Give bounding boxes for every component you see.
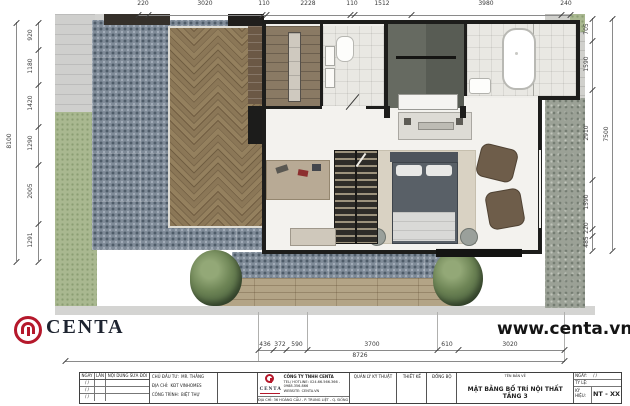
- wall-shelf: [325, 46, 335, 66]
- centa-logo-text: CENTA: [46, 316, 125, 339]
- closet-shelf: [398, 94, 458, 110]
- balcony-wood-deck: [213, 278, 455, 308]
- wall-hall-bottom-stub: [366, 106, 386, 109]
- dim-label: 2910: [583, 125, 590, 140]
- tree-left: [190, 250, 242, 306]
- drawing-name-label: TÊN BẢN VẼ: [457, 374, 573, 378]
- stair-railing: [288, 32, 301, 102]
- bathtub-drain: [515, 52, 518, 55]
- revision-row: / /: [80, 394, 95, 401]
- dim-line-bottom: [258, 350, 564, 351]
- ext-line: [437, 312, 438, 350]
- company-name: CÔNG TY TNHH CENTA: [284, 374, 349, 379]
- dim-label: 705: [583, 23, 590, 34]
- lawn-left: [55, 112, 97, 308]
- company-logo-rule: [260, 393, 280, 394]
- wall-hall-closet: [384, 20, 388, 112]
- wall-stairs-hall: [320, 24, 323, 106]
- dim-label: 920: [27, 29, 34, 40]
- bed-headboard: [390, 152, 458, 162]
- dim-label: 1590: [583, 194, 590, 209]
- signature-title: QUẢN LÝ KỸ THUẬT: [354, 374, 392, 379]
- deck-column: [170, 28, 194, 226]
- wall-top: [262, 20, 580, 24]
- dim-label: 3700: [364, 341, 379, 348]
- dim-total-label: 7500: [603, 126, 610, 141]
- dim-label: 372: [274, 341, 285, 348]
- path-steps-left: [55, 14, 95, 118]
- dim-label: 110: [346, 0, 357, 7]
- dim-label: 110: [258, 0, 269, 7]
- bed-pillow: [396, 165, 422, 176]
- dim-label: 2228: [300, 0, 315, 7]
- website-url: www.centa.vn: [497, 319, 630, 339]
- company-logo-text: CENTA: [260, 387, 282, 392]
- revision-row: / /: [80, 387, 95, 393]
- deck-column: [218, 28, 242, 226]
- floor-plan-sheet: 220 3020 110 2228 110 1512 3980 240 920 …: [0, 0, 630, 406]
- ext-line: [307, 312, 308, 350]
- owner-value: MR. THẮNG: [181, 374, 204, 383]
- bed-pillow: [426, 165, 452, 176]
- project-info: CHỦ ĐẦU TƯ:MR. THẮNG ĐỊA CHỈ:KĐT VINHOME…: [150, 373, 218, 403]
- window-right: [539, 150, 541, 228]
- signature-col: THIẾT KẾ: [397, 373, 427, 403]
- dim-label: 240: [560, 0, 571, 7]
- dim-label: 3020: [197, 0, 212, 7]
- dim-label: 590: [291, 341, 302, 348]
- signature-col: QUẢN LÝ KỸ THUẬT: [350, 373, 398, 403]
- dim-line-bottom-total: [65, 361, 564, 362]
- dim-line-right: [592, 18, 593, 250]
- bed-blanket-foot: [393, 212, 455, 241]
- dim-label: 3980: [478, 0, 493, 7]
- dim-label: 1290: [27, 135, 34, 150]
- hallway-floor: [323, 26, 384, 106]
- dim-label: 220: [137, 0, 148, 7]
- dim-label: 2005: [27, 183, 34, 198]
- date-label: NGÀY:: [575, 373, 593, 379]
- dresser-item: [404, 118, 411, 125]
- signature-title: THIẾT KẾ: [403, 374, 421, 379]
- dim-line-right-total: [612, 18, 613, 250]
- dim-label: 220: [583, 222, 590, 233]
- wall-right-bathroom: [576, 20, 580, 100]
- dim-label: 485: [583, 236, 590, 247]
- shoe-shelf: [334, 150, 356, 244]
- dim-total-label: 8100: [6, 133, 13, 148]
- company-cell: CENTA CÔNG TY TNHH CENTA TEL/ HOTLINE: 0…: [258, 373, 350, 403]
- empty-cell: [218, 373, 258, 403]
- closet-stub: [460, 106, 466, 118]
- stone-path-right: [545, 98, 585, 308]
- balcony-pebble-roof: [232, 252, 442, 280]
- project-value: BIỆT THỰ: [181, 392, 200, 401]
- code-label: KÝ HIỆU:: [574, 387, 592, 403]
- nightstand: [460, 228, 478, 246]
- bathtub: [502, 28, 536, 90]
- wall-hall-bottom: [264, 106, 322, 109]
- deck-column: [194, 28, 218, 226]
- dim-label: 436: [259, 341, 270, 348]
- signature-col: ĐỒNG BỘ: [427, 373, 457, 403]
- title-block: NGÀY LẦN NỘI DUNG SỬA ĐỔI / / / / / / CH…: [79, 372, 622, 404]
- wall-left: [262, 20, 266, 254]
- sliding-door: [436, 248, 522, 257]
- dim-line-left: [38, 22, 39, 261]
- wall-bathroom-bottom: [540, 96, 580, 100]
- revision-header: LẦN: [95, 373, 106, 379]
- path-bottom: [55, 306, 595, 315]
- company-website: WEBSITE: CENTA.VN: [284, 389, 349, 393]
- company-address: ĐỊA CHỈ: 36 HOÀNG CẦU - P. TRUNG LIỆT - …: [258, 396, 349, 403]
- closet-hanging-rail: [396, 56, 456, 59]
- dim-label: 3020: [502, 341, 517, 348]
- company-logo: CENTA: [258, 373, 284, 396]
- toilet: [336, 36, 354, 62]
- project-label: CÔNG TRÌNH:: [152, 392, 179, 401]
- dim-line-left-total: [16, 22, 17, 261]
- dim-label: 1420: [27, 95, 34, 110]
- bench-bottom: [290, 228, 336, 246]
- revision-row: / /: [80, 380, 95, 386]
- dim-total-label: 8726: [352, 352, 367, 359]
- dresser-tray: [418, 122, 454, 130]
- tree-right: [433, 250, 483, 306]
- dim-label: 1291: [27, 232, 34, 247]
- drawing-title: MẶT BẰNG BỐ TRÍ NỘI THẤT TẦNG 3: [457, 386, 573, 400]
- armchair: [484, 187, 526, 231]
- centa-logo-icon: [14, 316, 42, 344]
- desk-item: [312, 164, 321, 171]
- signature-title: ĐỒNG BỘ: [432, 374, 452, 379]
- revision-table: NGÀY LẦN NỘI DUNG SỬA ĐỔI / / / / / /: [80, 373, 150, 403]
- drawing-code: NT - XX: [592, 387, 621, 403]
- toilet-bath: [469, 78, 491, 94]
- ext-line: [258, 312, 259, 362]
- dim-label: 1180: [27, 58, 34, 73]
- revision-header: NỘI DUNG SỬA ĐỔI: [106, 373, 149, 379]
- dresser-item: [456, 118, 463, 125]
- wall-closet-bath: [464, 20, 467, 96]
- dim-label: 610: [441, 341, 452, 348]
- owner-label: CHỦ ĐẦU TƯ:: [152, 374, 179, 383]
- closet-stub: [384, 106, 390, 118]
- date-value: / /: [593, 373, 597, 379]
- drawing-meta: NGÀY: / / TỶ LỆ: KÝ HIỆU: NT - XX: [574, 373, 621, 403]
- centa-logo-bar: [27, 327, 30, 336]
- address-value: KĐT VINHOMES: [171, 383, 202, 392]
- scale-label: TỶ LỆ:: [575, 380, 587, 385]
- drawing-title-cell: TÊN BẢN VẼ MẶT BẰNG BỐ TRÍ NỘI THẤT TẦNG…: [457, 373, 574, 403]
- company-tel: TEL/ HOTLINE: 024.66.566.366 - 0988.356.…: [284, 380, 349, 388]
- dim-label: 1590: [583, 56, 590, 71]
- revision-header: NGÀY: [80, 373, 95, 379]
- company-logo-icon: [265, 374, 274, 383]
- address-label: ĐỊA CHỈ:: [152, 383, 169, 392]
- dim-label: 1512: [374, 0, 389, 7]
- wall-shelf: [325, 68, 335, 88]
